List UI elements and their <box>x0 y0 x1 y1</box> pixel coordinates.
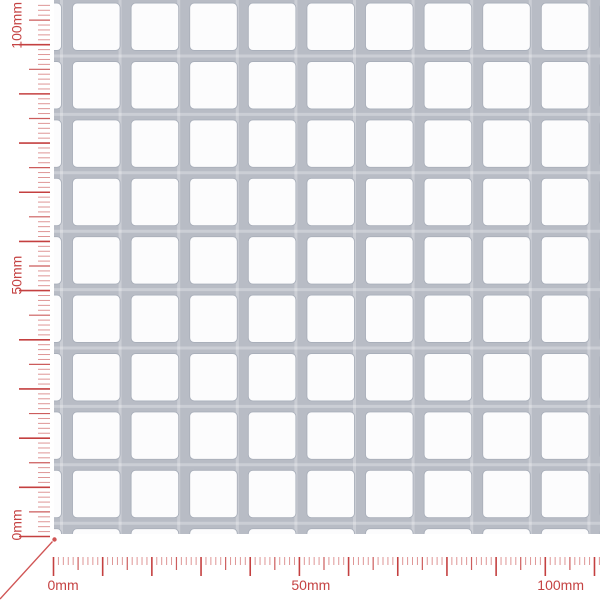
sheet-hole <box>366 412 414 459</box>
sheet-hole <box>73 354 121 401</box>
sheet-hole <box>541 120 589 167</box>
sheet-hole <box>483 62 531 109</box>
sheet-hole <box>307 470 355 517</box>
sheet-hole <box>190 470 238 517</box>
sheet-hole <box>366 237 414 284</box>
sheet-hole <box>424 62 472 109</box>
sheet-hole <box>541 470 589 517</box>
sheet-hole <box>131 3 179 50</box>
sheet-hole <box>541 237 589 284</box>
sheet-hole <box>366 470 414 517</box>
sheet-hole <box>541 62 589 109</box>
sheet-hole <box>366 295 414 342</box>
sheet-hole <box>131 120 179 167</box>
sheet-hole <box>366 62 414 109</box>
perforated-sheet-preview: 0mm50mm100mm0mm50mm100mm <box>0 0 600 600</box>
sheet-hole <box>190 3 238 50</box>
sheet-hole <box>131 295 179 342</box>
sheet-hole <box>366 120 414 167</box>
sheet-hole <box>366 354 414 401</box>
origin-dot <box>52 537 56 541</box>
sheet-hole <box>190 120 238 167</box>
sheet-hole <box>73 62 121 109</box>
sheet-hole <box>73 178 121 225</box>
sheet-hole <box>307 62 355 109</box>
sheet-hole <box>131 178 179 225</box>
sheet-hole <box>73 470 121 517</box>
metal-sheet <box>14 0 600 582</box>
sheet-hole <box>131 62 179 109</box>
bottom-ruler-label-50mm: 50mm <box>291 577 330 593</box>
sheet-hole <box>483 470 531 517</box>
sheet-hole <box>190 62 238 109</box>
sheet-hole <box>248 120 296 167</box>
sheet-hole <box>248 470 296 517</box>
sheet-hole <box>424 354 472 401</box>
sheet-hole <box>131 354 179 401</box>
sheet-hole <box>73 412 121 459</box>
sheet-hole <box>73 120 121 167</box>
preview-canvas: 0mm50mm100mm0mm50mm100mm <box>0 0 600 600</box>
sheet-hole <box>73 3 121 50</box>
left-ruler-label-100mm: 100mm <box>9 2 25 49</box>
sheet-hole <box>483 295 531 342</box>
sheet-hole <box>190 237 238 284</box>
sheet-hole <box>248 3 296 50</box>
sheet-hole <box>307 237 355 284</box>
sheet-hole <box>190 178 238 225</box>
sheet-hole <box>307 412 355 459</box>
sheet-hole <box>424 178 472 225</box>
left-ruler-label-0mm: 0mm <box>9 509 25 540</box>
sheet-hole <box>190 412 238 459</box>
sheet-hole <box>190 295 238 342</box>
sheet-hole <box>424 412 472 459</box>
sheet-hole <box>248 237 296 284</box>
sheet-hole <box>248 354 296 401</box>
sheet-hole <box>73 237 121 284</box>
sheet-hole <box>307 3 355 50</box>
sheet-hole <box>541 178 589 225</box>
sheet-hole <box>248 295 296 342</box>
sheet-hole <box>541 354 589 401</box>
sheet-hole <box>366 178 414 225</box>
sheet-hole <box>424 120 472 167</box>
bottom-ruler-label-100mm: 100mm <box>537 577 584 593</box>
sheet-hole <box>307 295 355 342</box>
sheet-hole <box>483 178 531 225</box>
sheet-hole <box>541 412 589 459</box>
sheet-hole <box>307 178 355 225</box>
sheet-hole <box>131 237 179 284</box>
sheet-hole <box>424 470 472 517</box>
sheet-hole <box>424 3 472 50</box>
sheet-hole <box>541 3 589 50</box>
sheet-hole <box>483 3 531 50</box>
sheet-hole <box>190 354 238 401</box>
sheet-hole <box>73 295 121 342</box>
sheet-hole <box>307 120 355 167</box>
sheet-hole <box>248 412 296 459</box>
sheet-hole <box>248 178 296 225</box>
sheet-hole <box>131 470 179 517</box>
sheet-hole <box>307 354 355 401</box>
sheet-hole <box>483 412 531 459</box>
sheet-hole <box>483 120 531 167</box>
sheet-hole <box>483 237 531 284</box>
sheet-hole <box>366 3 414 50</box>
bottom-ruler-label-0mm: 0mm <box>48 577 79 593</box>
sheet-hole <box>424 295 472 342</box>
sheet-hole <box>541 295 589 342</box>
left-ruler-label-50mm: 50mm <box>9 256 25 295</box>
sheet-hole <box>248 62 296 109</box>
sheet-hole <box>424 237 472 284</box>
sheet-hole <box>131 412 179 459</box>
sheet-hole <box>483 354 531 401</box>
